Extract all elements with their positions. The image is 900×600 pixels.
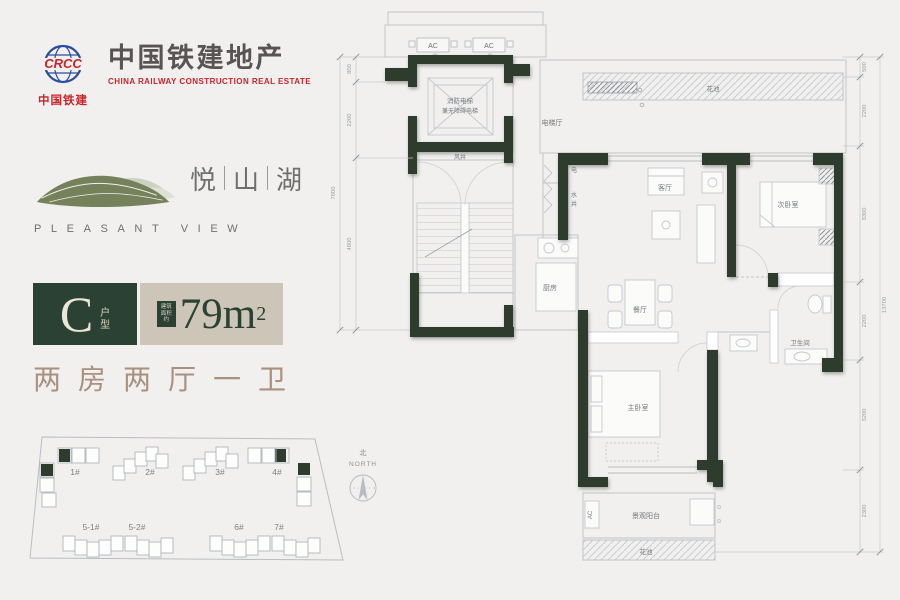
room-label-fire-elevator-2: 兼无障碍电梯 — [442, 107, 478, 115]
area-value: 79m — [180, 293, 256, 336]
shaft-symbols — [544, 165, 552, 213]
building-label-1: 1# — [70, 467, 80, 477]
hills-icon — [34, 146, 178, 210]
ac-label-1: AC — [428, 43, 438, 50]
unit-type-suffix-1: 户 — [100, 308, 110, 320]
room-label-balcony: 景观阳台 — [632, 511, 660, 520]
master-furniture — [588, 371, 660, 461]
area-note-3: 约 — [164, 317, 170, 324]
dim-left-3: 4800 — [347, 238, 353, 251]
unit-type-box: C 户 型 — [33, 283, 137, 345]
room-label-fire-elevator-1: 消防电梯 — [447, 96, 474, 105]
brand-divider — [267, 166, 268, 190]
area-note: 建筑 面积 约 — [157, 301, 176, 327]
dim-right-total: 13700 — [882, 297, 888, 313]
staircase — [417, 162, 513, 293]
room-label-air-shaft: 风井 — [454, 153, 466, 161]
dimension-chain-left: 800 2200 4800 7800 — [331, 54, 413, 333]
unit-type-letter: C — [60, 289, 93, 339]
room-label-electric: 电 — [571, 166, 577, 174]
room-label-water-2: 井 — [571, 200, 577, 208]
dim-left-2: 2200 — [347, 114, 353, 127]
site-plan: 1# 2# 3# 4# 5-1# 5-2# 6# 7# 北 NORTH — [25, 430, 380, 592]
brand-char-2: 山 — [233, 160, 259, 197]
dim-right-2: 2200 — [862, 105, 868, 118]
building-label-6: 6# — [234, 522, 244, 532]
dim-right-1: 500 — [862, 62, 868, 72]
unit-type-suffix: 户 型 — [100, 308, 110, 332]
room-label-elevator-hall: 电梯厅 — [542, 118, 563, 127]
room-label-flower-bottom: 花池 — [640, 547, 654, 556]
building-cluster-3 — [183, 447, 238, 480]
globe-icon: CRCC — [39, 44, 87, 86]
room-label-master: 主卧室 — [628, 403, 649, 412]
brand-name-en: PLEASANT VIEW — [34, 223, 302, 235]
logo-mark-text: 中国铁建 — [30, 92, 96, 108]
dim-right-5: 3200 — [862, 409, 868, 422]
building-label-4: 4# — [272, 467, 282, 477]
brand-char-1: 悦 — [190, 160, 216, 197]
unit-area-box: 建筑 面积 约 79m2 — [140, 283, 283, 345]
room-label-water-1: 水 — [571, 191, 577, 199]
unit-type-suffix-2: 型 — [100, 320, 110, 332]
dim-right-4: 2200 — [862, 315, 868, 328]
dim-left-total: 7800 — [331, 187, 337, 200]
ac-label-balcony: AC — [588, 510, 594, 519]
ac-label-2: AC — [484, 43, 494, 50]
building-label-5-2: 5-2# — [128, 522, 145, 532]
area-note-1: 建筑 — [161, 304, 172, 311]
door-arcs — [678, 245, 768, 372]
room-label-dining: 餐厅 — [633, 305, 647, 314]
brand-section: 悦 山 湖 PLEASANT VIEW — [34, 146, 302, 235]
dim-right-3: 3300 — [862, 208, 868, 221]
company-name-zh: 中国铁建地产 — [108, 44, 311, 74]
building-label-2: 2# — [145, 467, 155, 477]
building-cluster-5-2 — [125, 536, 173, 557]
company-name-en: CHINA RAILWAY CONSTRUCTION REAL ESTATE — [108, 77, 311, 86]
bath-fixtures — [730, 286, 831, 364]
building-cluster-7 — [272, 536, 320, 557]
living-furniture — [648, 168, 723, 263]
room-label-kitchen: 厨房 — [543, 283, 557, 292]
floor-plan: AC AC 消防电梯 兼无障碍电梯 电梯厅 风井 电 水 井 厨房 客厅 餐厅 … — [330, 5, 900, 595]
room-label-living: 客厅 — [658, 183, 672, 192]
dining-furniture — [608, 280, 672, 328]
rooms-summary: 两房两厅一卫 — [33, 358, 303, 398]
logo-initials: CRCC — [44, 56, 82, 71]
elevator-cab — [428, 78, 493, 135]
area-exponent: 2 — [256, 303, 266, 326]
dimension-chain-right: 500 2200 3300 2200 3200 2300 13700 — [715, 54, 888, 555]
building-cluster-2 — [113, 447, 168, 480]
page-canvas: { "logo": { "company_zh": "中国铁建地产", "com… — [0, 0, 900, 600]
dim-left-1: 800 — [347, 64, 353, 74]
logo-section: CRCC 中国铁建 中国铁建地产 CHINA RAILWAY CONSTRUCT… — [30, 44, 311, 108]
building-label-7: 7# — [274, 522, 284, 532]
brand-name: 悦 山 湖 — [190, 160, 302, 197]
building-cluster-5-1 — [63, 536, 123, 557]
building-label-3: 3# — [215, 467, 225, 477]
dim-right-6: 2300 — [862, 505, 868, 518]
hatched-wall — [588, 82, 637, 93]
room-label-bath: 卫生间 — [790, 338, 810, 347]
brand-divider — [224, 166, 225, 190]
building-label-5-1: 5-1# — [82, 522, 99, 532]
unit-badge: C 户 型 建筑 面积 约 79m2 — [33, 283, 283, 345]
building-cluster-6 — [210, 536, 270, 557]
brand-char-3: 湖 — [276, 160, 302, 197]
kitchen-fixtures — [536, 238, 578, 311]
logo-mark: CRCC 中国铁建 — [30, 44, 96, 108]
room-label-flower-top: 花池 — [707, 84, 721, 93]
room-label-bedroom2: 次卧室 — [778, 200, 799, 209]
